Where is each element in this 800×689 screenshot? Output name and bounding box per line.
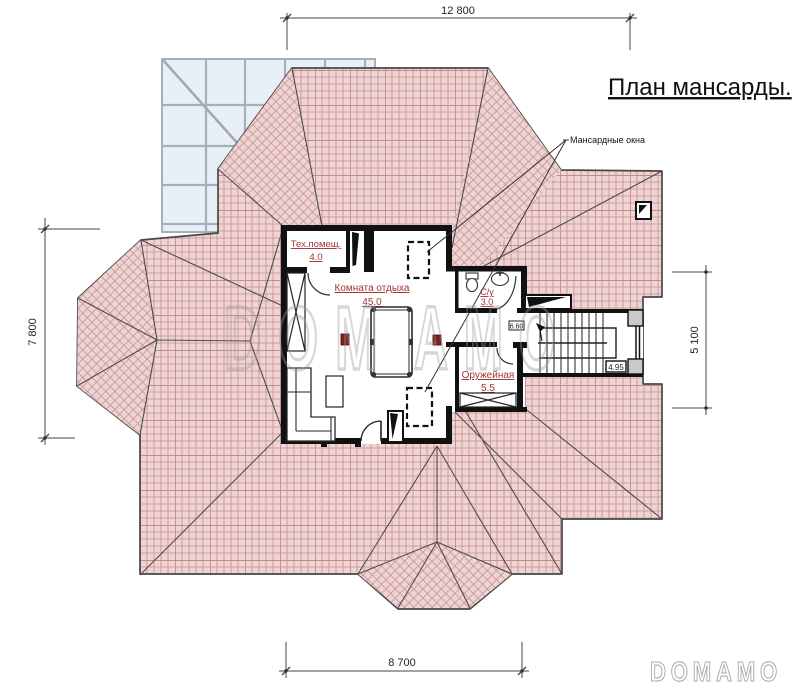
- svg-text:DOMAMO: DOMAMO: [650, 656, 782, 687]
- svg-text:DOM: DOM: [224, 289, 395, 389]
- svg-text:Тех.помещ.: Тех.помещ.: [291, 239, 341, 250]
- svg-text:Мансардные окна: Мансардные окна: [570, 135, 645, 145]
- svg-text:4.95: 4.95: [608, 363, 624, 372]
- svg-text:8 700: 8 700: [388, 657, 416, 669]
- svg-text:4.0: 4.0: [309, 252, 322, 263]
- svg-text:5 100: 5 100: [689, 326, 701, 354]
- svg-text:7 800: 7 800: [27, 318, 39, 346]
- svg-text:План мансарды.: План мансарды.: [608, 74, 792, 101]
- svg-text:12 800: 12 800: [441, 5, 475, 17]
- svg-text:AMO: AMO: [414, 289, 571, 389]
